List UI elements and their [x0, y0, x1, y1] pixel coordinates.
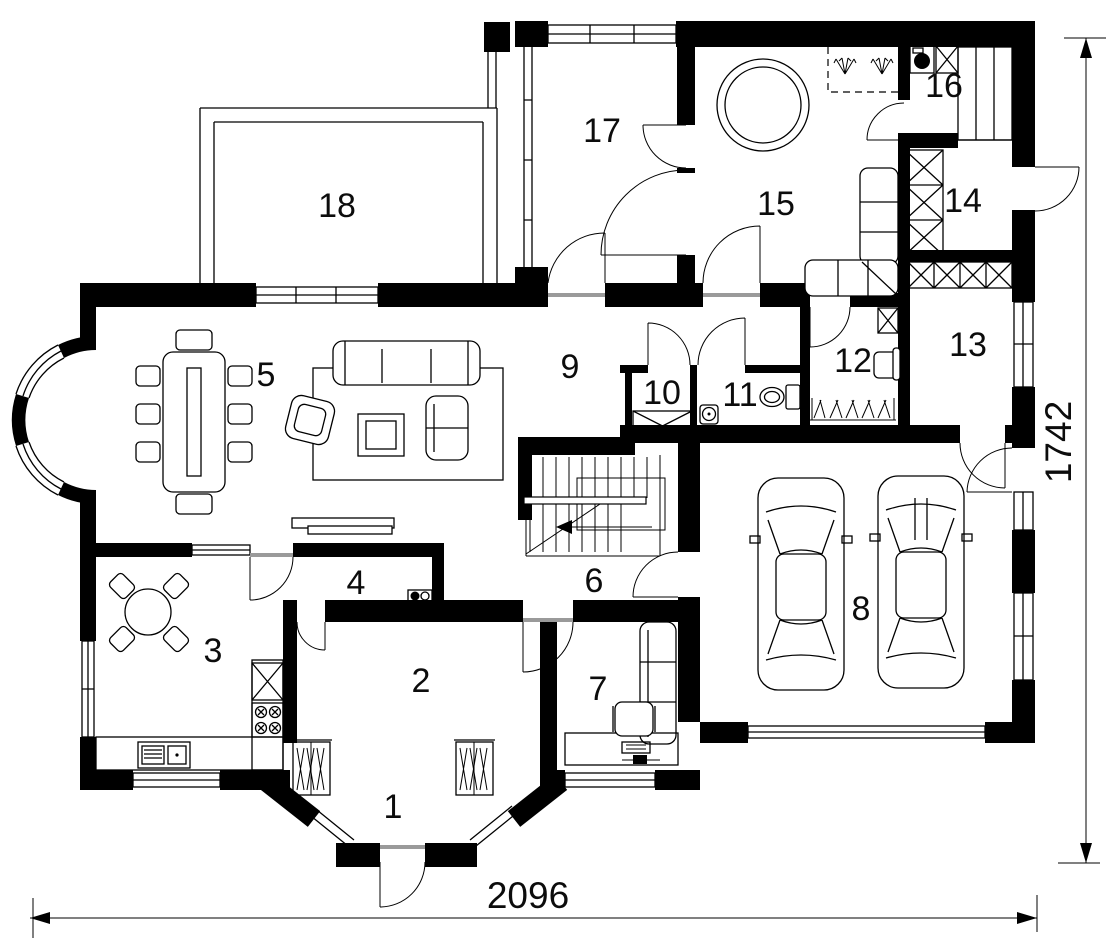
room-label-1: 1	[384, 788, 403, 826]
door-room11	[698, 318, 745, 365]
door-15-17-leaf1	[643, 125, 686, 168]
sideboard	[292, 518, 394, 534]
dimension-height-label: 1742	[1038, 401, 1079, 483]
room-label-12: 12	[834, 342, 872, 380]
round-table	[108, 572, 190, 653]
shower-spray-icon	[834, 58, 856, 74]
bay-window	[12, 336, 96, 504]
door-room12	[810, 307, 850, 347]
room-label-13: 13	[949, 326, 987, 364]
office	[565, 622, 678, 765]
door-room10	[648, 323, 690, 365]
hand-basin	[700, 405, 718, 424]
room-label-9: 9	[561, 348, 580, 386]
room-label-10: 10	[643, 374, 681, 412]
window-room13-right	[1014, 302, 1033, 387]
dining-set	[136, 330, 252, 514]
sofa-3seat	[333, 341, 480, 385]
room-label-2: 2	[412, 662, 431, 700]
entrance-door	[380, 845, 425, 907]
room-label-14: 14	[944, 182, 982, 220]
room-label-18: 18	[318, 187, 356, 225]
door-room17	[548, 233, 605, 297]
window-room3-bottom	[133, 773, 220, 787]
room-label-5: 5	[257, 356, 276, 394]
room-label-8: 8	[852, 590, 871, 628]
room-label-15: 15	[757, 185, 795, 223]
room-label-7: 7	[589, 670, 608, 708]
chair	[874, 348, 900, 380]
shelves-room16	[958, 47, 1012, 140]
closet-room14-column	[905, 150, 943, 255]
door-room5-hall	[250, 553, 293, 600]
staircase	[524, 455, 665, 556]
hot-tub	[717, 59, 809, 151]
closet-room13-strip	[908, 262, 1012, 288]
window-room17-top	[548, 25, 676, 43]
door-room14-exit	[1035, 167, 1079, 211]
room-label-4: 4	[347, 564, 366, 602]
floor-plan-drawing: 123456789101112131415161718 2096 1742	[0, 0, 1110, 941]
printer	[622, 755, 660, 764]
door-room4	[297, 622, 325, 650]
armchair	[283, 393, 336, 446]
room-label-16: 16	[925, 67, 963, 105]
stove	[252, 703, 283, 737]
window-terrace-doors	[256, 287, 378, 303]
room-label-11: 11	[722, 376, 757, 414]
window-glass-wall-17	[524, 47, 532, 267]
sauna-zone	[828, 46, 934, 92]
terrace-outline	[200, 52, 497, 290]
window-kitchen-pass	[192, 545, 250, 555]
toilet	[760, 385, 800, 409]
fridge	[252, 663, 283, 700]
garage-door	[748, 726, 985, 738]
wardrobe-hangers	[290, 740, 495, 795]
kitchen	[96, 572, 283, 770]
clothes-rail	[810, 398, 896, 420]
garage	[750, 476, 972, 690]
floor-plan-page: 123456789101112131415161718 2096 1742	[0, 0, 1110, 941]
window-garage-right-2	[1014, 593, 1033, 680]
lounge-set	[283, 341, 503, 534]
dining-table	[163, 352, 225, 492]
car	[870, 476, 972, 688]
closet-room12	[878, 308, 898, 333]
stairs-direction-arrow	[556, 520, 652, 534]
dimension-width-label: 2096	[487, 875, 569, 916]
door-garage-hall	[633, 552, 678, 597]
coffee-table	[358, 414, 404, 456]
corner-sofa	[805, 168, 898, 296]
car	[750, 478, 852, 690]
door-room15	[703, 226, 760, 297]
room-label-17: 17	[583, 112, 621, 150]
sofa-2seat	[426, 396, 468, 460]
kitchen-sink	[138, 742, 190, 768]
window-garage-right-1	[1014, 492, 1033, 530]
window-room7-bottom	[565, 773, 655, 787]
bay-wall-right	[514, 782, 561, 819]
door-15-17-leaf2	[601, 170, 686, 255]
office-chair	[613, 702, 655, 736]
room-label-3: 3	[204, 632, 223, 670]
window-room3-left	[82, 641, 94, 737]
room-label-6: 6	[585, 562, 604, 600]
shower-spray-icon	[871, 58, 893, 74]
